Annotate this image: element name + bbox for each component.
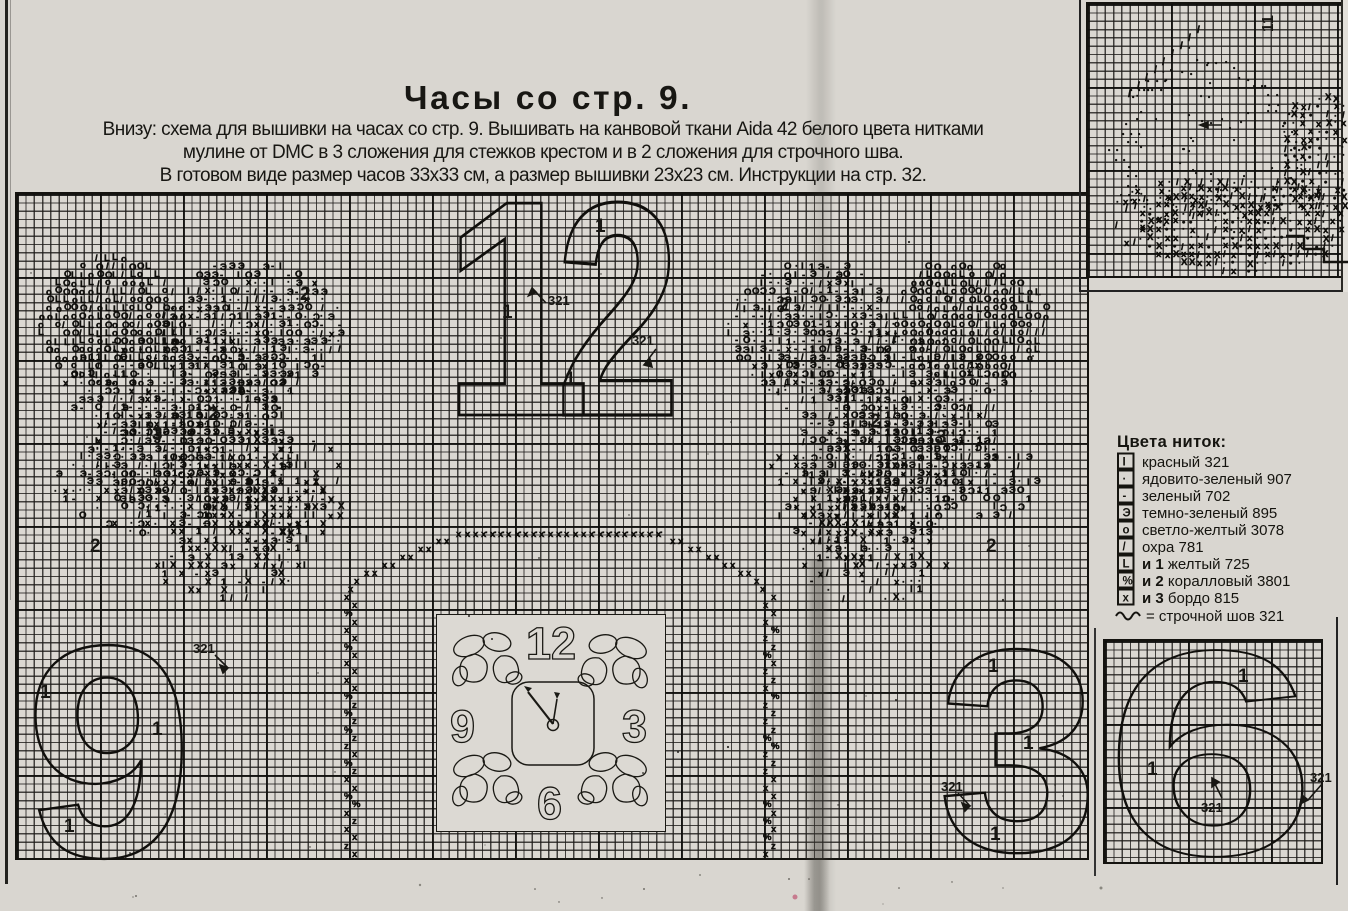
svg-text:I: I [777,387,780,398]
svg-text:x: x [254,560,260,571]
svg-text:/: / [1171,48,1174,60]
svg-text:X: X [1314,224,1321,235]
svg-text:1: 1 [195,361,201,372]
svg-text:-: - [926,428,929,439]
svg-text:X: X [205,577,212,588]
svg-text:·: · [817,419,820,430]
svg-text:x: x [793,476,799,487]
svg-text:x: x [336,460,342,471]
svg-text:X: X [819,518,826,529]
svg-text:-: - [113,345,116,356]
svg-text:-: - [1123,491,1127,503]
svg-text:O: O [46,345,54,356]
svg-text:x: x [245,460,251,471]
svg-text:Э: Э [843,568,850,579]
svg-text:·: · [819,453,822,464]
svg-text:зеленый 702: зеленый 702 [1142,488,1230,505]
svg-text:x: x [296,518,302,529]
svg-text:Э: Э [328,312,335,323]
svg-text:321: 321 [1201,800,1223,815]
svg-text:O: O [943,494,951,505]
svg-text:Э: Э [1123,508,1131,520]
svg-text:O: O [79,510,87,521]
svg-text:-: - [238,577,241,588]
svg-text:z: z [771,675,776,686]
svg-text:Э: Э [884,476,891,487]
svg-text:•: • [1140,109,1143,116]
svg-text:z: z [763,749,768,760]
svg-text:Ɔ: Ɔ [238,353,245,364]
svg-text:Э: Э [312,369,319,380]
svg-text:/: / [1009,510,1012,521]
svg-text:·: · [1175,202,1178,213]
svg-text:x: x [771,774,777,785]
svg-text:·: · [196,435,199,446]
svg-text:•: • [1247,111,1249,117]
svg-text:O: O [304,320,312,331]
svg-text:ядовито-зеленый 907: ядовито-зеленый 907 [1142,471,1292,488]
svg-text:·: · [902,419,905,430]
svg-text:I: I [172,369,175,380]
svg-text:·: · [1139,234,1142,245]
svg-text:/: / [1125,204,1128,215]
svg-text:·: · [80,378,83,389]
svg-text:I: I [80,451,83,462]
svg-text:x: x [1132,196,1138,207]
svg-text:-: - [196,312,199,323]
svg-text:·: · [1143,202,1146,213]
svg-text:·: · [918,477,921,488]
svg-text:x: x [63,378,69,389]
svg-text:Э: Э [851,428,858,439]
svg-text:I: I [163,511,166,522]
svg-text:x: x [352,832,358,843]
svg-text:o: o [55,319,61,330]
svg-text:·: · [1255,191,1258,202]
svg-text:/: / [271,577,274,588]
svg-text:-: - [794,502,797,513]
svg-text:/: / [985,469,988,480]
svg-text:•: • [1196,57,1199,64]
svg-text:/: / [313,443,316,454]
svg-text:•: • [1136,116,1139,123]
svg-text:x: x [382,560,388,571]
svg-text:x: x [400,552,406,563]
svg-text:·: · [801,377,804,388]
svg-text:-: - [121,444,124,455]
svg-text:/: / [180,312,183,323]
svg-text:•: • [1289,258,1293,269]
svg-text:/: / [263,561,266,572]
svg-text:•: • [1210,121,1212,127]
svg-text:-: - [238,510,241,521]
svg-text:-: - [279,501,282,512]
svg-text:3: 3 [622,701,647,752]
svg-text:O: O [139,528,147,539]
svg-text:Э: Э [130,452,137,463]
svg-text:Ɔ: Ɔ [71,370,78,381]
svg-text:Ɔ: Ɔ [761,378,768,389]
svg-text:/: / [1222,266,1225,277]
svg-text:-: - [993,478,996,489]
svg-text:·: · [851,476,854,487]
svg-text:X: X [884,511,891,522]
svg-text:·: · [768,385,771,396]
svg-text:1: 1 [943,478,949,489]
svg-text:-: - [187,510,190,521]
svg-text:-: - [129,410,132,421]
svg-text:/: / [296,377,299,388]
svg-text:·: · [88,485,91,496]
svg-text:·: · [777,278,780,289]
svg-text:·: · [163,427,166,438]
svg-text:X: X [836,551,843,562]
svg-text:x: x [523,529,529,540]
svg-text:.: . [660,525,663,536]
svg-text:x: x [564,529,570,540]
svg-text:x: x [771,791,777,802]
svg-text:•: • [1254,151,1256,157]
svg-text:/: / [993,436,996,447]
svg-text:/: / [1188,32,1191,44]
svg-text:-: - [72,494,75,505]
svg-text:Э: Э [228,428,235,439]
svg-text:.: . [602,525,605,536]
svg-text:x: x [352,783,358,794]
svg-text:x: x [1300,118,1306,129]
svg-text:x: x [444,536,450,547]
svg-text:·: · [96,503,99,514]
svg-text:O: O [744,353,752,364]
svg-text:x: x [418,544,424,555]
svg-text:•: • [1115,157,1118,164]
svg-text:•: • [1123,157,1126,164]
svg-text:L: L [1034,344,1040,355]
svg-text:x: x [977,410,983,421]
svg-text:Э: Э [287,369,294,380]
svg-text:I: I [1123,457,1126,469]
svg-text:•: • [1182,147,1184,153]
svg-text:o: o [1123,525,1130,537]
svg-text:2: 2 [556,139,681,480]
svg-text:/: / [1282,258,1285,269]
svg-text:I: I [212,503,215,514]
svg-text:·: · [287,576,290,587]
svg-text:I: I [270,427,273,438]
svg-text:1: 1 [152,719,163,740]
svg-text:Э: Э [130,427,137,438]
svg-text:Э: Э [993,510,1000,521]
svg-text:x: x [1124,238,1130,249]
svg-text:x: x [967,368,973,379]
svg-text:O: O [1009,370,1017,381]
svg-text:Э: Э [262,352,269,363]
svg-text:X: X [204,502,211,513]
svg-text:L: L [64,337,70,348]
svg-text:·: · [975,386,978,397]
svg-text:I: I [295,460,298,471]
svg-text:.: . [593,525,596,536]
svg-text:·: · [934,519,937,530]
svg-text:·: · [751,370,754,381]
svg-text:o: o [1027,353,1033,364]
svg-text:1: 1 [295,543,301,554]
svg-text:X: X [262,518,269,529]
svg-text:x: x [901,560,907,571]
svg-text:x: x [288,494,294,505]
svg-text:x: x [112,518,118,529]
svg-text:Э: Э [818,378,825,389]
svg-text:X: X [212,543,219,554]
svg-text:·: · [1331,241,1334,252]
svg-text:Э: Э [154,394,161,405]
svg-text:·: · [147,528,150,539]
svg-text:·: · [950,387,953,398]
svg-text:1: 1 [988,656,999,677]
svg-text:x: x [722,560,728,571]
svg-text:%: % [771,741,780,752]
svg-text:z: z [763,766,768,777]
svg-text:Э: Э [802,410,809,421]
svg-text:X: X [262,493,269,504]
svg-text:-: - [810,576,813,587]
svg-text:Э: Э [286,460,293,471]
svg-text:I: I [1027,477,1030,488]
svg-text:-: - [785,468,788,479]
svg-text:X: X [221,544,228,555]
svg-text:Ɔ: Ɔ [304,360,311,371]
svg-text:X: X [337,511,344,522]
svg-text:/: / [801,395,804,406]
svg-text:/: / [1115,220,1118,231]
svg-text:•: • [1195,171,1197,177]
svg-text:•: • [1140,145,1142,151]
svg-text:O: O [1017,485,1025,496]
svg-text:z: z [344,841,349,852]
svg-text:x: x [746,568,752,579]
svg-text:1: 1 [279,461,285,472]
svg-text:x: x [344,675,350,686]
svg-text:x: x [810,536,816,547]
svg-text:-: - [195,569,198,580]
svg-text:·: · [1255,266,1258,277]
svg-text:-: - [286,353,289,364]
svg-text:·: · [1149,204,1152,215]
svg-text:.: . [560,525,563,536]
svg-text:/: / [1214,225,1217,236]
svg-text:-: - [130,360,133,371]
svg-text:•: • [1267,92,1270,99]
svg-text:I: I [835,344,838,355]
svg-text:1: 1 [1147,759,1158,780]
svg-text:Э: Э [1034,476,1041,487]
svg-text:x: x [352,650,358,661]
svg-text:321: 321 [1310,770,1332,785]
svg-text:x: x [678,536,684,547]
svg-text:1: 1 [990,824,1001,845]
svg-text:O: O [960,493,968,504]
svg-text:Э: Э [179,518,186,529]
svg-text:1: 1 [196,526,202,537]
svg-text:x: x [245,518,251,529]
svg-text:-: - [221,354,224,365]
svg-text:/: / [1042,327,1045,338]
svg-text:x: x [1197,258,1203,269]
svg-text:Э: Э [245,502,252,513]
svg-text:·: · [960,419,963,430]
svg-text:I: I [910,584,913,595]
svg-text:•: • [1143,87,1146,94]
svg-text:6: 6 [1105,589,1316,911]
svg-text:Цвета ниток:: Цвета ниток: [1117,433,1226,451]
svg-text:Э: Э [56,469,63,480]
svg-text:X: X [1275,202,1282,213]
svg-text:9: 9 [25,583,193,911]
svg-text:3: 3 [936,427,947,448]
svg-text:-: - [106,461,109,472]
svg-text:x: x [968,477,974,488]
svg-text:.: . [618,525,621,536]
svg-text:·: · [154,519,157,530]
svg-text:X: X [1189,257,1196,268]
svg-text:-: - [976,461,979,472]
svg-text:Э: Э [171,426,178,437]
svg-text:•: • [1132,94,1135,101]
svg-text:I: I [262,585,265,596]
svg-text:/: / [992,403,995,414]
svg-text:•: • [1162,144,1164,150]
svg-text:X: X [279,577,286,588]
svg-text:-: - [104,345,107,356]
svg-text:x: x [975,360,981,371]
svg-text:/: / [885,567,888,578]
svg-text:= строчной шов 321: = строчной шов 321 [1146,608,1284,625]
svg-text:•: • [1200,94,1202,100]
svg-text:Э: Э [229,261,236,272]
svg-text:Ɔ: Ɔ [1000,503,1007,514]
svg-text:Э: Э [229,493,236,504]
svg-text:1: 1 [121,369,127,380]
svg-text:/: / [926,476,929,487]
svg-text:•: • [1116,147,1119,154]
svg-text:1: 1 [220,593,226,604]
svg-text:x: x [188,427,194,438]
svg-text:•: • [1277,102,1280,109]
svg-text:x: x [352,666,358,677]
svg-text:·: · [942,452,945,463]
svg-text:/: / [163,411,166,422]
svg-text:Э: Э [280,377,287,388]
svg-text:x: x [1258,202,1264,213]
svg-text:•: • [1190,71,1193,78]
svg-text:•: • [1271,166,1273,172]
svg-text:O: O [827,369,835,380]
svg-text:O: O [983,493,991,504]
svg-text:1: 1 [162,353,168,364]
svg-text:•: • [1318,168,1322,179]
svg-text:O: O [843,403,851,414]
svg-text:Э: Э [893,478,900,489]
svg-text:x: x [230,561,236,572]
svg-text:•: • [1127,173,1130,180]
svg-text:·: · [884,594,887,605]
svg-text:1: 1 [89,352,95,363]
svg-text:X: X [1301,184,1308,195]
svg-text:x: x [196,585,202,596]
svg-text:Э: Э [271,485,278,496]
svg-text:·: · [1116,197,1119,208]
svg-text:/: / [1200,177,1203,188]
svg-text:/: / [1123,542,1127,554]
svg-text:/: / [869,585,872,596]
svg-text:·: · [868,327,871,338]
svg-text:x: x [771,808,777,819]
svg-text:X: X [918,551,925,562]
svg-text:Э: Э [1001,486,1008,497]
svg-text:x: x [436,536,442,547]
svg-text:O: O [270,378,278,389]
svg-text:•: • [1138,131,1141,138]
svg-text:·: · [902,594,905,605]
svg-text:L: L [1009,336,1015,347]
svg-text:X: X [1342,201,1348,212]
svg-text:x: x [573,529,579,540]
svg-text:•: • [1188,113,1190,119]
svg-text:I: I [778,511,781,522]
svg-text:-: - [860,435,863,446]
svg-text:X: X [1184,177,1191,188]
svg-text:-: - [977,486,980,497]
svg-text:3: 3 [938,590,1098,911]
svg-text:11: 11 [1260,15,1277,32]
svg-text:Ɔ: Ɔ [188,453,195,464]
svg-text:x: x [714,552,720,563]
svg-text:•: • [1125,121,1128,128]
svg-text:z: z [344,741,349,752]
svg-text:/: / [1306,249,1309,260]
svg-text:2: 2 [208,404,219,425]
svg-text:охра 781: охра 781 [1142,539,1204,556]
svg-text:·: · [95,411,98,422]
svg-text:-: - [229,353,232,364]
svg-text:o: o [47,312,53,323]
svg-text:I: I [727,328,730,339]
svg-text:Э: Э [197,420,204,431]
svg-text:x: x [1234,202,1240,213]
svg-text:I: I [869,501,872,512]
svg-text:O: O [163,469,171,480]
svg-text:•: • [1135,139,1138,146]
svg-text:Ɔ: Ɔ [867,385,874,396]
svg-text:·: · [918,495,921,506]
svg-text:·: · [96,443,99,454]
svg-text:321: 321 [548,293,570,308]
svg-text:.: . [519,525,522,536]
svg-text:Ɔ: Ɔ [959,377,966,388]
svg-text:-: - [139,344,142,355]
svg-text:.: . [635,525,638,536]
svg-text:I: I [743,304,746,315]
svg-text:·: · [278,535,281,546]
svg-text:O: O [935,477,943,488]
svg-text:x: x [1140,222,1146,233]
svg-text:Э: Э [163,495,170,506]
svg-text:.: . [485,525,488,536]
svg-text:x: x [1234,184,1240,195]
svg-text:x: x [1266,201,1272,212]
svg-text:x: x [1339,224,1345,235]
svg-text:1: 1 [917,584,923,595]
